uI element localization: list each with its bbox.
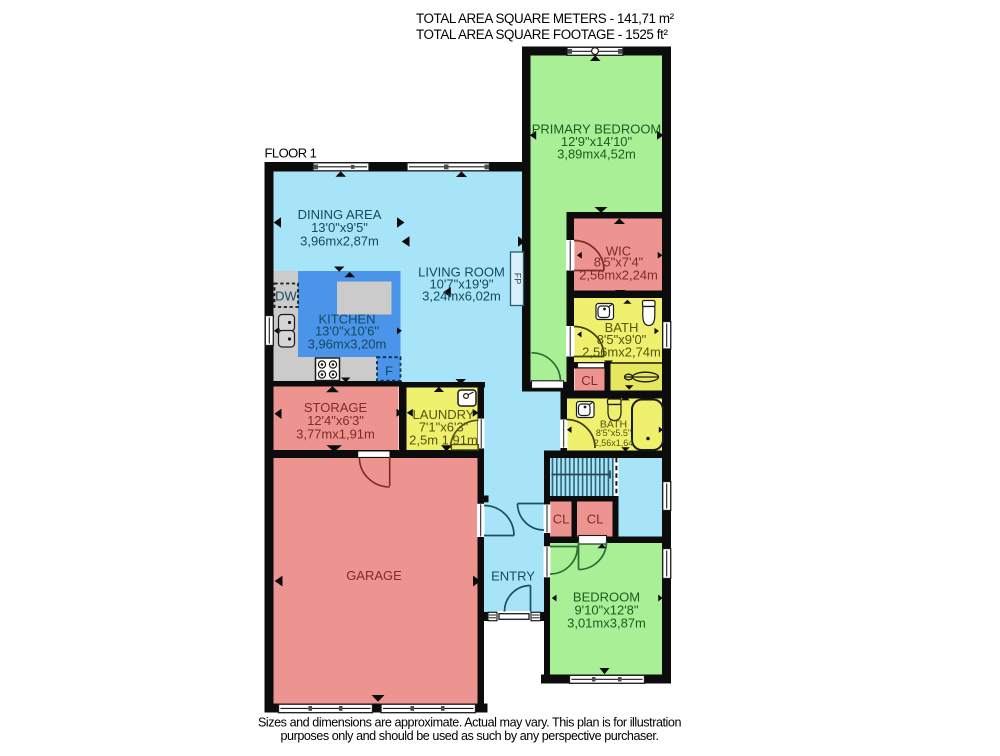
svg-text:3,96mx2,87m: 3,96mx2,87m — [300, 234, 379, 249]
svg-text:2,56x1,64: 2,56x1,64 — [594, 438, 634, 448]
svg-text:DW: DW — [275, 289, 297, 304]
svg-text:3,77mx1,91m: 3,77mx1,91m — [296, 427, 375, 442]
svg-text:3,01mx3,87m: 3,01mx3,87m — [567, 616, 646, 631]
svg-text:3,89mx4,52m: 3,89mx4,52m — [557, 147, 636, 162]
svg-text:TOTAL AREA SQUARE METERS - 141: TOTAL AREA SQUARE METERS - 141,71 m² — [416, 11, 675, 26]
svg-text:TOTAL AREA SQUARE FOOTAGE - 15: TOTAL AREA SQUARE FOOTAGE - 1525 ft² — [416, 27, 668, 42]
svg-text:8'5"x5.5": 8'5"x5.5" — [596, 428, 631, 438]
svg-text:3,24mx6,02m: 3,24mx6,02m — [422, 288, 501, 303]
svg-text:FP: FP — [513, 273, 523, 285]
svg-text:CL: CL — [581, 373, 598, 388]
svg-text:CL: CL — [587, 512, 604, 527]
svg-text:2,56mx2,24m: 2,56mx2,24m — [579, 267, 658, 282]
svg-text:CL: CL — [553, 512, 570, 527]
svg-text:purposes only and should be us: purposes only and should be used as such… — [280, 729, 658, 743]
svg-text:FLOOR 1: FLOOR 1 — [265, 146, 317, 161]
svg-text:2,5m 1,91m: 2,5m 1,91m — [409, 432, 478, 447]
svg-text:ENTRY: ENTRY — [491, 569, 535, 584]
svg-text:Sizes and dimensions are appro: Sizes and dimensions are approximate. Ac… — [258, 715, 681, 729]
svg-text:F: F — [385, 364, 393, 379]
svg-text:3,96mx3,20m: 3,96mx3,20m — [308, 336, 387, 351]
svg-text:2,56mx2,74m: 2,56mx2,74m — [582, 345, 661, 360]
svg-text:GARAGE: GARAGE — [346, 568, 402, 583]
